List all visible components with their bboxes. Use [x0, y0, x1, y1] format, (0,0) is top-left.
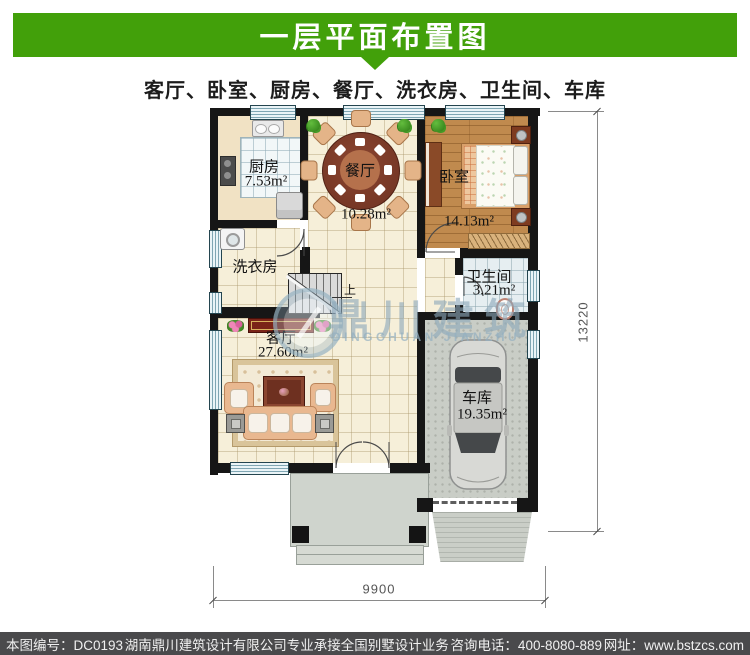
garage-label: 车库	[462, 387, 492, 408]
cushion	[270, 413, 290, 433]
cushion	[248, 413, 268, 433]
floor-plan: 上 厨	[208, 100, 548, 572]
bed-end-bench	[468, 233, 530, 249]
wall-bath-bottom	[417, 312, 538, 320]
coffee-table	[263, 376, 305, 408]
plant-icon	[307, 119, 320, 132]
garage-window	[527, 330, 540, 359]
flower-icon	[227, 320, 244, 332]
nightstand	[511, 208, 531, 226]
porch-column	[292, 526, 309, 543]
laundry-window-2	[209, 292, 222, 314]
dim-ext-bottom-right	[545, 566, 546, 608]
flower-icon	[314, 320, 331, 332]
dim-ext-bottom-left	[213, 566, 214, 608]
wall-garage-bottom	[517, 498, 538, 512]
page-title: 一层平面布置图	[259, 14, 490, 56]
wall-bedroom-left	[417, 116, 425, 250]
toilet	[496, 298, 514, 320]
dim-line-right	[597, 112, 598, 532]
bathroom-area: 3.21m²	[473, 283, 515, 300]
fridge	[276, 192, 303, 219]
wall-living-bottom	[287, 463, 333, 473]
title-banner: 一层平面布置图	[13, 13, 737, 57]
website-url: 网址：www.bstzcs.com	[604, 634, 744, 654]
washing-machine	[220, 228, 245, 250]
dining-area: 10.28m²	[341, 207, 391, 224]
kitchen-area: 7.53m²	[245, 174, 287, 191]
bathroom-window	[527, 270, 540, 302]
wall-garage-bottom	[417, 498, 433, 512]
phone-number: 咨询电话：400-8080-889	[450, 634, 602, 654]
banner-pointer-triangle	[361, 57, 389, 70]
cushion	[315, 389, 331, 406]
laundry-label: 洗衣房	[232, 256, 277, 277]
cushion	[292, 413, 312, 433]
bedroom-area: 14.13m²	[444, 214, 494, 231]
porch-column	[409, 526, 426, 543]
stairs-up-label: 上	[344, 281, 356, 298]
plate	[355, 194, 365, 202]
dim-width-value: 9900	[363, 582, 396, 597]
plate	[328, 165, 336, 175]
bed-quilt	[476, 145, 515, 207]
wall-kitchen-laundry	[210, 220, 277, 228]
plate	[355, 138, 365, 146]
living-window-left	[209, 330, 222, 410]
nightstand	[511, 126, 531, 144]
dining-chair	[405, 161, 422, 181]
living-area: 27.60m²	[258, 345, 308, 362]
plate	[384, 165, 392, 175]
pillow	[513, 176, 528, 205]
porch-step	[296, 554, 424, 565]
dining-label: 餐厅	[345, 160, 375, 181]
garage-door-dashed	[433, 501, 517, 512]
dim-line-bottom	[213, 600, 545, 601]
plant-icon	[398, 119, 411, 132]
wall-living-garage	[417, 320, 425, 473]
wall-living-bottom	[210, 463, 232, 473]
kitchen-window	[250, 105, 296, 120]
bedroom-label: 卧室	[439, 166, 469, 187]
stove	[220, 156, 236, 186]
pillow	[513, 146, 528, 175]
drawing-number: 本图编号：DC0193	[6, 634, 123, 654]
dining-chair	[301, 161, 318, 181]
kitchen-sink	[252, 120, 284, 137]
entrance-double-door	[335, 438, 390, 469]
dining-chair	[351, 110, 371, 127]
kitchen-door-arc	[276, 228, 305, 257]
side-table	[315, 414, 334, 433]
company-slogan: 湖南鼎川建筑设计有限公司专业承接全国别墅设计业务	[125, 634, 449, 654]
living-window-bottom	[230, 462, 289, 475]
dim-height-value: 13220	[576, 301, 591, 342]
wall-bedroom-bottom	[460, 248, 538, 258]
room-list-subtitle: 客厅、卧室、厨房、餐厅、洗衣房、卫生间、车库	[0, 74, 750, 103]
footer-bar: 本图编号：DC0193 湖南鼎川建筑设计有限公司专业承接全国别墅设计业务 咨询电…	[0, 632, 750, 655]
side-table	[226, 414, 245, 433]
cushion	[230, 389, 248, 408]
garage-driveway-ramp	[430, 512, 534, 562]
garage-area: 19.35m²	[457, 407, 507, 424]
hall-to-bath-floor	[425, 258, 455, 312]
plant-icon	[432, 119, 445, 132]
wall-bath-left	[455, 258, 463, 275]
wall-bedroom-bottom	[417, 248, 425, 258]
sofa	[243, 406, 317, 440]
bedroom-window	[445, 105, 505, 120]
